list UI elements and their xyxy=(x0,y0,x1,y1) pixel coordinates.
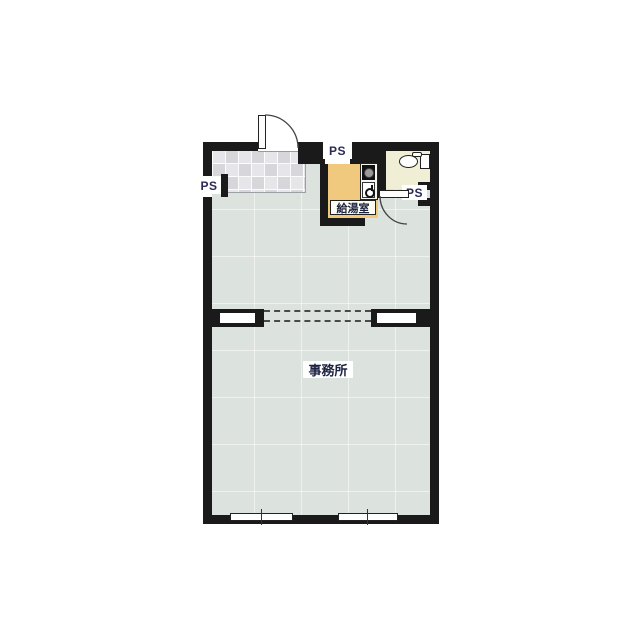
window-bottom-right xyxy=(338,513,398,521)
ps-left-wall-stub xyxy=(221,174,228,197)
floorplan-page: { "plan": { "type": "japanese-floorplan"… xyxy=(0,0,640,639)
sink-icon xyxy=(362,182,375,198)
ps-top-label: PS xyxy=(323,142,352,159)
toilet-door-arc xyxy=(380,196,408,225)
office-label: 事務所 xyxy=(303,361,353,378)
toilet-icon xyxy=(398,152,430,172)
partition-dashed-line-bottom xyxy=(264,320,371,322)
window-bottom-right-mullion xyxy=(367,509,368,525)
floorplan: PS PS PS 給湯室 事務所 xyxy=(203,142,439,524)
kitchenette-label: 給湯室 xyxy=(330,200,376,215)
stove-icon xyxy=(362,165,375,180)
ps-left-text: PS xyxy=(200,180,217,192)
partition-left-inset xyxy=(220,313,255,323)
ps-top-text: PS xyxy=(329,145,346,157)
partition-dashed-line-top xyxy=(264,310,371,312)
window-bottom-left-mullion xyxy=(261,509,262,525)
ps-left-label: PS xyxy=(197,177,221,194)
kitchenette-wall-bottom xyxy=(320,218,365,226)
office-label-text: 事務所 xyxy=(308,360,347,379)
kitchenette-wall-left xyxy=(320,164,328,226)
kitchen-counter xyxy=(360,163,378,200)
partition-right-inset xyxy=(377,313,416,323)
kitchenette-label-text: 給湯室 xyxy=(337,200,370,216)
wall-top-stub-left xyxy=(298,151,325,164)
entrance-door-arc xyxy=(265,115,298,148)
